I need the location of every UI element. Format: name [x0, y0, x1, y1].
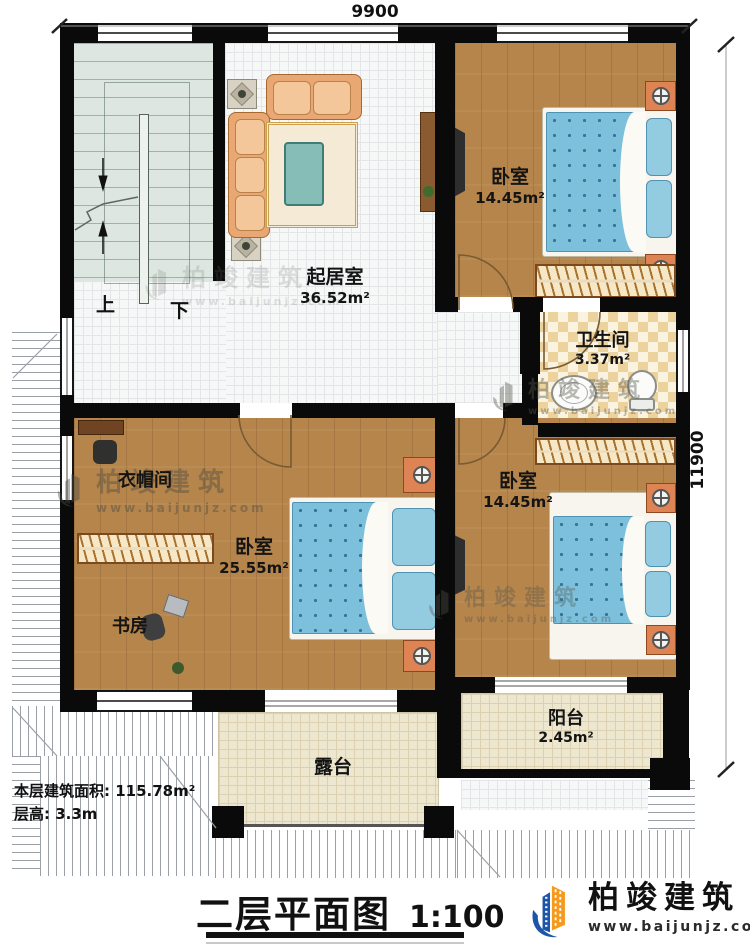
stairs-down-label: 下: [170, 296, 189, 323]
dimension-right: 11900: [688, 428, 708, 492]
bedroom-top-label: 卧室 14.45m²: [450, 166, 570, 207]
brand-block: 柏竣建筑 www.baijunjz.com: [522, 878, 750, 940]
plan-scale: 1:100: [409, 900, 505, 935]
title-underline: [206, 932, 464, 938]
dimension-top: 9900: [330, 2, 420, 22]
glass-door: [265, 681, 627, 706]
bedroom-master-label: 卧室 25.55m²: [194, 536, 314, 577]
cloakroom-label: 衣帽间: [100, 470, 190, 492]
title-underline-thin: [206, 942, 464, 944]
stairs-up-label: 上: [96, 290, 115, 317]
bathroom-label: 卫生间 3.37m²: [545, 330, 660, 368]
terrace-label: 露台: [283, 756, 383, 779]
floor-notes: 本层建筑面积: 115.78m² 层高: 3.3m: [14, 780, 195, 825]
stair-break-line: [75, 197, 138, 230]
dimension-line: [60, 26, 726, 770]
floor-area-note: 本层建筑面积: 115.78m²: [14, 780, 195, 803]
door-arc: [239, 415, 291, 467]
brand-url: www.baijunjz.com: [588, 919, 750, 935]
living-room-label: 起居室 36.52m²: [270, 266, 400, 307]
brand-logo-icon: [522, 878, 578, 940]
floor-height-note: 层高: 3.3m: [14, 803, 195, 826]
brand-name: 柏竣建筑: [588, 883, 750, 914]
dimension-tick: [52, 19, 734, 777]
balcony-label: 阳台 2.45m²: [506, 708, 626, 746]
door-arc: [459, 418, 505, 464]
study-label: 书房: [98, 616, 162, 638]
plan-title: 二层平面图: [196, 884, 391, 938]
title-block: 二层平面图 1:100: [196, 884, 505, 938]
floor-plan-canvas: 柏竣建筑 www.baijunjz.com 柏竣建筑 www.baijunjz.…: [0, 0, 750, 952]
door-arc: [459, 255, 513, 310]
bedroom-right-label: 卧室 14.45m²: [458, 470, 578, 511]
